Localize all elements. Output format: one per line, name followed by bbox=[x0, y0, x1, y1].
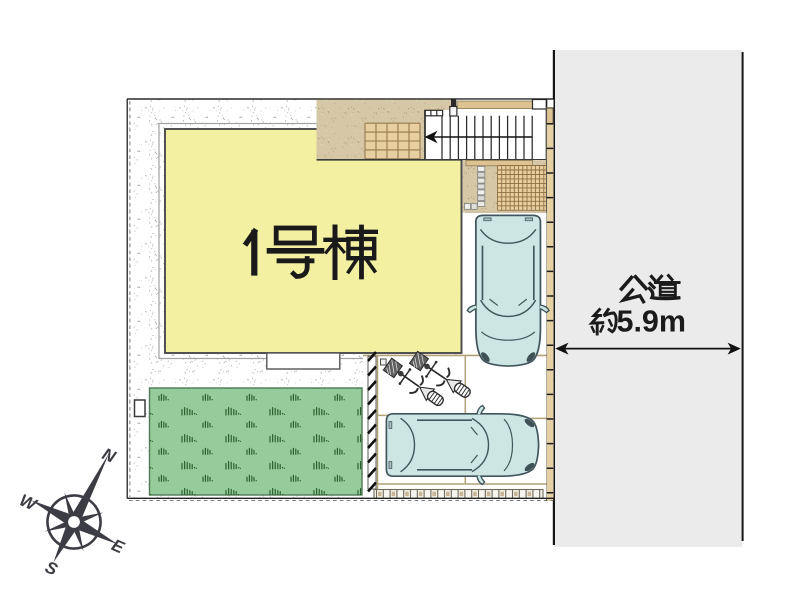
svg-text:5.9m: 5.9m bbox=[617, 304, 687, 338]
